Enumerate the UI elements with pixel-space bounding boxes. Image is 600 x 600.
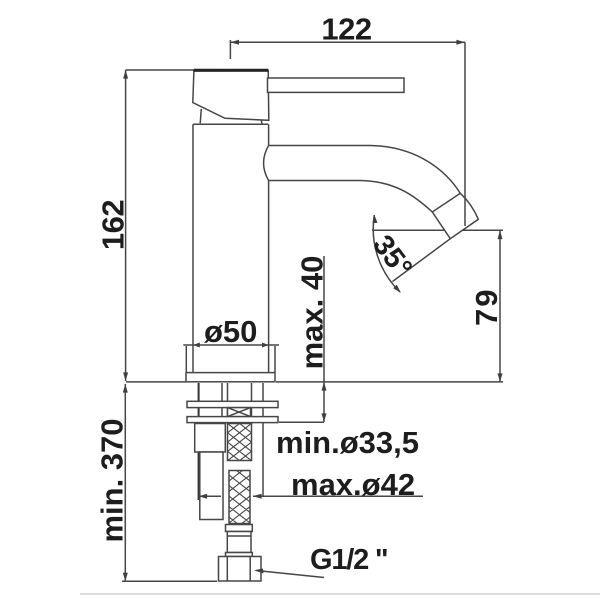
svg-text:max. 40: max. 40 [295, 256, 330, 370]
svg-text:G1/2 ": G1/2 " [310, 544, 387, 576]
svg-text:min.ø33,5: min.ø33,5 [276, 425, 419, 460]
svg-text:ø50: ø50 [204, 314, 257, 349]
svg-text:min. 370: min. 370 [95, 418, 130, 542]
svg-text:79: 79 [469, 287, 504, 325]
svg-text:122: 122 [321, 12, 371, 47]
